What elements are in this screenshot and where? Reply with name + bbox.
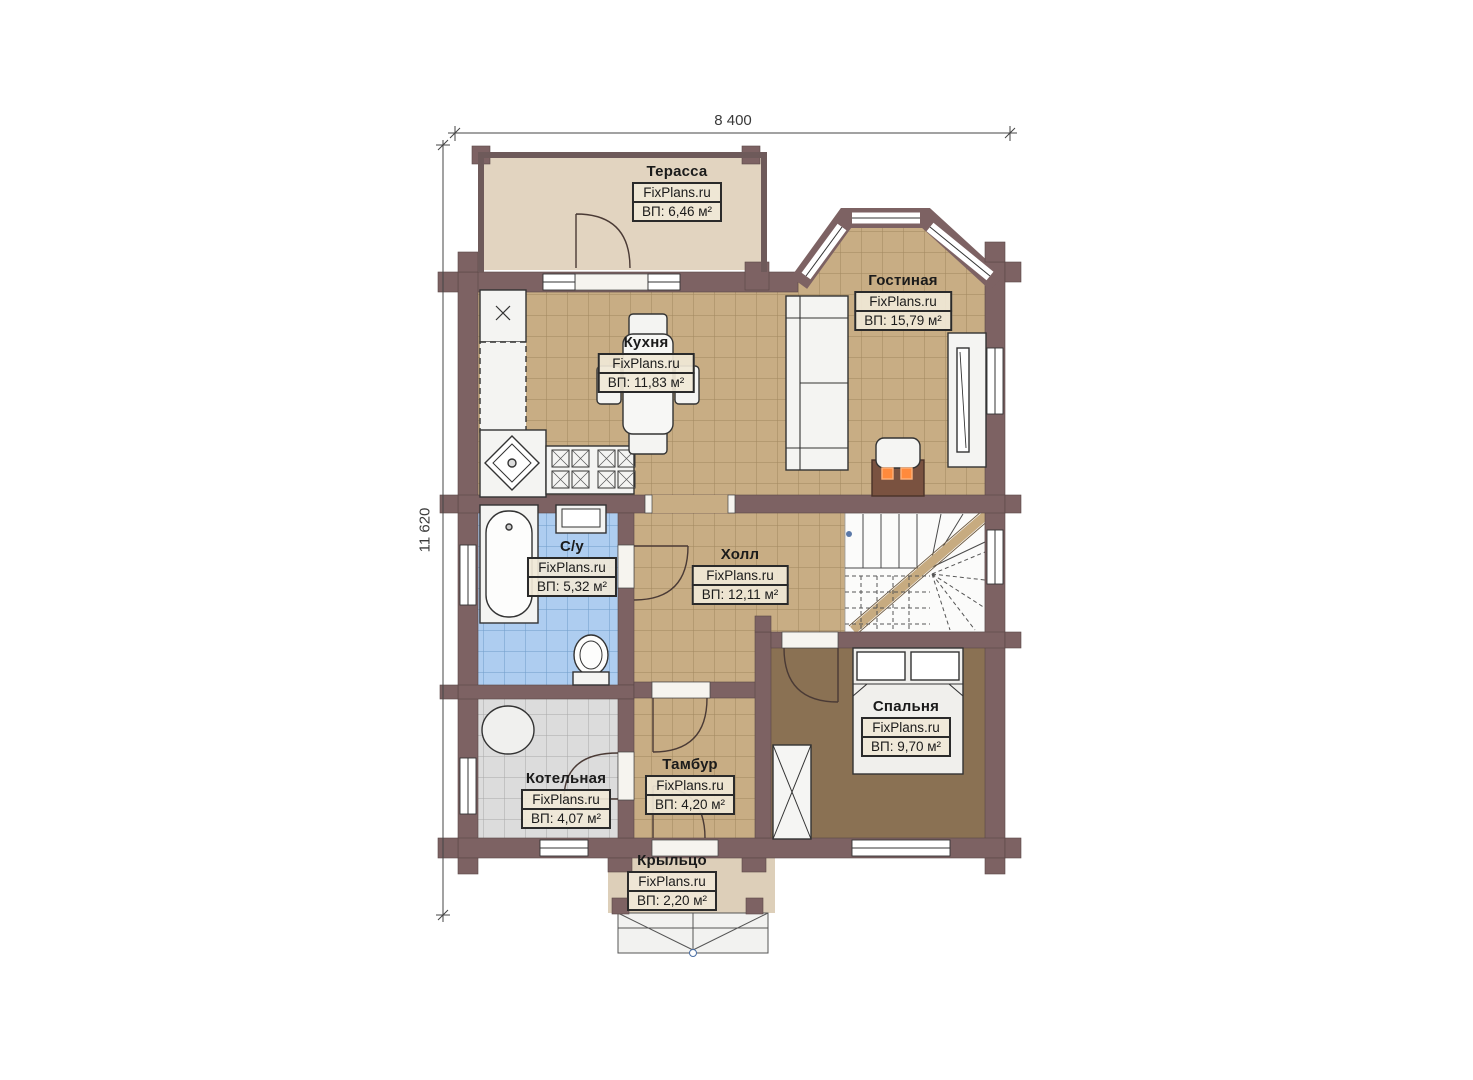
fireplace-ember [882, 468, 893, 479]
watermark: FixPlans.ru [632, 182, 722, 203]
dimension-height-label: 11 620 [417, 508, 434, 553]
room-label-kitchen: Кухня FixPlans.ru ВП: 11,83 м² [598, 334, 695, 393]
room-area: ВП: 4,20 м² [645, 794, 735, 815]
room-area: ВП: 4,07 м² [521, 808, 611, 829]
room-label-boxes: FixPlans.ru ВП: 12,11 м² [692, 565, 789, 605]
kitchen-counter [480, 290, 526, 342]
room-label-boxes: FixPlans.ru ВП: 11,83 м² [598, 353, 695, 393]
room-label-boxes: FixPlans.ru ВП: 15,79 м² [854, 291, 952, 331]
watermark: FixPlans.ru [527, 557, 617, 578]
room-label-bedroom: Спальня FixPlans.ru ВП: 9,70 м² [861, 698, 951, 757]
kitchen-upper-cabinet [480, 342, 526, 432]
watermark: FixPlans.ru [854, 291, 952, 312]
watermark: FixPlans.ru [861, 717, 951, 738]
fireplace-top [876, 438, 920, 468]
wall-tambour-bedroom [755, 632, 771, 838]
watermark: FixPlans.ru [692, 565, 789, 586]
room-name: Гостиная [854, 272, 952, 289]
stair-marker-dot [846, 531, 852, 537]
room-label-hall: Холл FixPlans.ru ВП: 12,11 м² [692, 546, 789, 605]
room-area: ВП: 6,46 м² [632, 201, 722, 222]
room-name: Кухня [598, 334, 695, 351]
room-label-boxes: FixPlans.ru ВП: 4,07 м² [521, 789, 611, 829]
porch-steps [618, 913, 768, 957]
pillow [857, 652, 905, 680]
toilet-tank [573, 672, 609, 685]
room-name: Терасса [632, 163, 722, 180]
room-label-terrace: Терасса FixPlans.ru ВП: 6,46 м² [632, 163, 722, 222]
fireplace-ember [901, 468, 912, 479]
room-name: Крыльцо [627, 852, 717, 869]
terrace-door-opening [575, 274, 648, 290]
bedroom-door-opening [782, 632, 838, 648]
room-label-boxes: FixPlans.ru ВП: 6,46 м² [632, 182, 722, 222]
wall-bath-boiler [458, 685, 634, 699]
room-label-living: Гостиная FixPlans.ru ВП: 15,79 м² [854, 272, 952, 331]
watermark: FixPlans.ru [521, 789, 611, 810]
room-area: ВП: 9,70 м² [861, 736, 951, 757]
room-area: ВП: 12,11 м² [692, 584, 789, 605]
room-label-porch: Крыльцо FixPlans.ru ВП: 2,20 м² [627, 852, 717, 911]
wall-bathroom-right [618, 513, 634, 685]
room-area: ВП: 11,83 м² [598, 372, 695, 393]
watermark: FixPlans.ru [627, 871, 717, 892]
room-name: С/у [527, 538, 617, 555]
boiler-tank [482, 706, 534, 754]
room-area: ВП: 15,79 м² [854, 310, 952, 331]
room-name: Холл [692, 546, 789, 563]
room-area: ВП: 5,32 м² [527, 576, 617, 597]
pillow [911, 652, 959, 680]
watermark: FixPlans.ru [645, 775, 735, 796]
room-name: Тамбур [645, 756, 735, 773]
room-name: Котельная [521, 770, 611, 787]
room-label-tambour: Тамбур FixPlans.ru ВП: 4,20 м² [645, 756, 735, 815]
room-label-bathroom: С/у FixPlans.ru ВП: 5,32 м² [527, 538, 617, 597]
tambour-door-opening [652, 682, 710, 698]
bathroom-door-opening [618, 545, 634, 588]
room-name: Спальня [861, 698, 951, 715]
room-label-boxes: FixPlans.ru ВП: 5,32 м² [527, 557, 617, 597]
floor-plan-drawing [0, 0, 1473, 1080]
room-area: ВП: 2,20 м² [627, 890, 717, 911]
porch-post-right [746, 898, 763, 914]
watermark: FixPlans.ru [598, 353, 695, 374]
floor-plan: 8 400 11 620 Терасса FixPlans.ru ВП: 6,4… [0, 0, 1473, 1080]
room-label-boiler: Котельная FixPlans.ru ВП: 4,07 м² [521, 770, 611, 829]
dimension-width-label: 8 400 [714, 112, 752, 129]
room-label-boxes: FixPlans.ru ВП: 4,20 м² [645, 775, 735, 815]
room-label-boxes: FixPlans.ru ВП: 2,20 м² [627, 871, 717, 911]
room-label-boxes: FixPlans.ru ВП: 9,70 м² [861, 717, 951, 757]
staircase [845, 511, 990, 634]
boiler-door-opening [618, 752, 634, 800]
